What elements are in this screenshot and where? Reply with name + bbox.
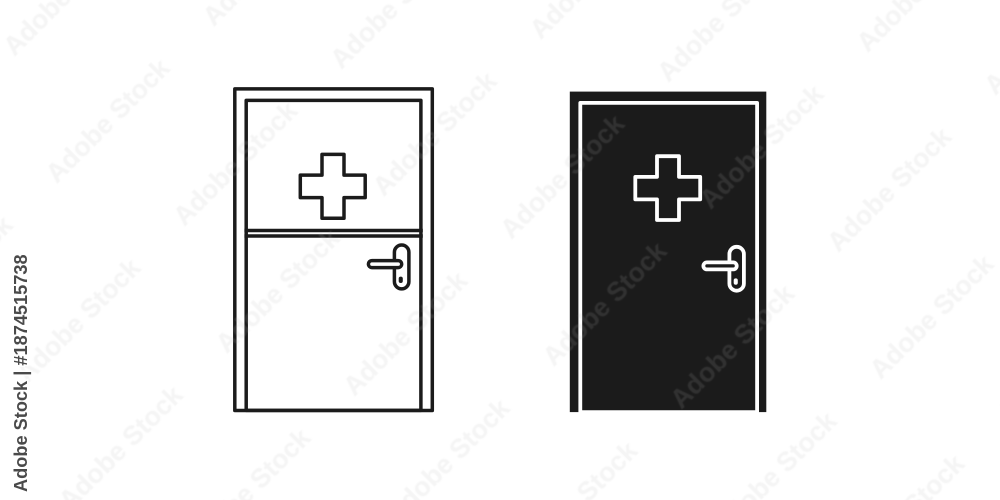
svg-text:Adobe Stock | #1874515738: Adobe Stock | #1874515738 bbox=[11, 254, 31, 492]
